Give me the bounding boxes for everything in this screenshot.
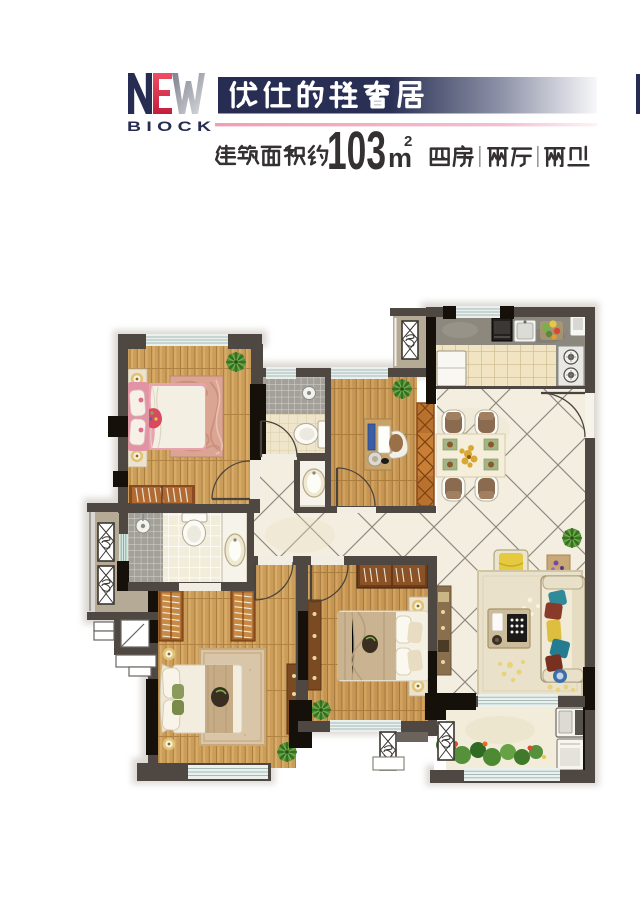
svg-text:B I O C K: B I O C K: [127, 119, 211, 134]
svg-text:2: 2: [404, 133, 412, 150]
svg-text:103: 103: [327, 121, 386, 181]
